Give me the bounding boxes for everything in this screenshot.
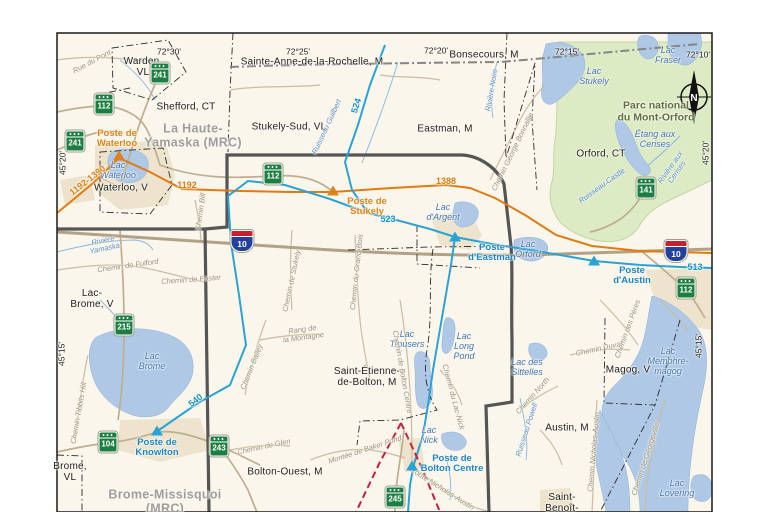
municipality-label-6: Orford, CT bbox=[576, 149, 625, 160]
substation-triangle-icon-4 bbox=[151, 426, 163, 436]
route-shield-qc-icon-7: 243 bbox=[210, 436, 229, 457]
route-shield-qc-icon-3: 112 bbox=[264, 164, 283, 185]
road-label-14: Route Nicholas-Austin bbox=[408, 466, 475, 512]
road-label-5: Chemin de Fulford bbox=[97, 258, 159, 275]
substation-triangle-icon-2 bbox=[449, 232, 461, 242]
stream-label-3: Ruisseau Castle bbox=[577, 167, 626, 206]
graticule-label-8: 45°15' bbox=[694, 334, 703, 358]
graticule-label-4: 72°10' bbox=[686, 50, 710, 59]
lake-label-10: Lac des Sittelles bbox=[511, 358, 543, 378]
road-label-17: Chemin North bbox=[514, 376, 551, 416]
municipality-label-2: Sainte-Anne-de-la-Rochelle, M bbox=[241, 57, 384, 68]
transmission-line-label-6: 513 bbox=[687, 263, 702, 273]
lake-label-12: Lac Lovering bbox=[660, 479, 695, 499]
park-label-0: Parc national du Mont-Orford bbox=[618, 100, 695, 123]
route-shield-qc-icon-6: 104 bbox=[99, 432, 118, 453]
municipality-label-13: Magog, V bbox=[606, 365, 650, 376]
graticule-label-2: 72°20' bbox=[424, 46, 448, 55]
road-label-9: Chemin Bailey bbox=[239, 343, 265, 391]
stream-label-1: Rivière Noire bbox=[484, 68, 500, 112]
map-canvas: N 72°30'72°25'72°20'72°15'72°10'45°20'45… bbox=[0, 0, 768, 512]
road-label-13: Chemin du Lac-Nick bbox=[440, 363, 465, 430]
lake-label-5: Lac Orford bbox=[515, 240, 541, 260]
road-label-12: Chemin de Bolton Centre bbox=[391, 330, 414, 414]
mrc-label-0: La Haute- Yamaska (MRC) bbox=[144, 122, 242, 150]
transmission-line-label-4: 523 bbox=[380, 215, 395, 225]
substation-triangle-icon-1 bbox=[327, 186, 339, 196]
lake-label-4: Lac d'Argent bbox=[426, 203, 459, 223]
graticule-label-3: 72°15' bbox=[555, 47, 579, 56]
municipality-label-11: Saint-Étienne- de-Bolton, M bbox=[334, 366, 400, 388]
lake-label-3: Étang aux Cerises bbox=[635, 130, 676, 150]
road-label-6: Chemin de Foster bbox=[161, 274, 221, 286]
substation-triangle-icon-5 bbox=[406, 461, 418, 471]
lake-label-11: Lac Memphré- magog bbox=[647, 347, 688, 377]
municipality-label-10: Bolton-Ouest, M bbox=[247, 467, 322, 478]
substation-label-1: Poste de Stukely bbox=[347, 197, 387, 218]
stream-label-2: Rivière Yamaska bbox=[87, 234, 120, 257]
municipality-label-3: Bonsecours, M bbox=[449, 50, 518, 61]
stream-label-4: Rivière aux Cerises bbox=[656, 150, 691, 190]
substation-triangle-icon-3 bbox=[588, 256, 600, 266]
map-labels-layer: 72°30'72°25'72°20'72°15'72°10'45°20'45°1… bbox=[0, 0, 768, 512]
lake-label-9: Lac Nick bbox=[420, 426, 438, 446]
route-shield-qc-icon-8: 245 bbox=[386, 487, 405, 508]
stream-label-0: Ruisseau Guilbert bbox=[311, 98, 344, 156]
municipality-label-12: Austin, M bbox=[545, 423, 588, 434]
route-shield-qc-icon-1: 241 bbox=[66, 131, 85, 152]
substation-label-2: Poste d'Eastman bbox=[468, 243, 516, 264]
stream-label-5: Ruisseau Powell bbox=[515, 402, 540, 457]
route-shield-qc-icon-4: 112 bbox=[677, 278, 696, 299]
road-label-2: Chemin de Stukely bbox=[281, 249, 302, 312]
substation-label-5: Poste de Bolton Centre bbox=[421, 454, 484, 475]
graticule-label-6: 45°15' bbox=[57, 342, 66, 366]
mrc-label-1: Brome-Missisquoi (MRC) bbox=[108, 488, 221, 512]
lake-label-7: Lac Trousers bbox=[390, 330, 425, 350]
substation-label-3: Poste d'Austin bbox=[613, 266, 651, 287]
municipality-label-1: Shefford, CT bbox=[157, 102, 216, 113]
lake-label-1: Lac Stukely bbox=[579, 67, 609, 87]
route-shield-qc-icon-5: 215 bbox=[115, 315, 134, 336]
road-label-0: Rue du Pont bbox=[72, 49, 113, 76]
road-label-18: Chemin de Georgeville bbox=[630, 421, 661, 496]
graticule-label-1: 72°25' bbox=[286, 47, 310, 56]
road-label-7: Chemin Tibbits Hill bbox=[70, 382, 89, 445]
road-label-4: Chemin George Bonnallie bbox=[490, 112, 535, 193]
substation-label-0: Poste de Waterloo bbox=[97, 129, 137, 150]
lake-label-2: Lac Fraser bbox=[655, 46, 681, 66]
transmission-line-label-0: 1192-1390 bbox=[68, 164, 108, 198]
municipality-label-9: Brome, VL bbox=[53, 461, 86, 483]
road-label-15: Chemin Nicholas-Austin bbox=[586, 412, 601, 492]
road-label-19: Chemin des Pères bbox=[614, 299, 643, 360]
municipality-label-4: Stukely-Sud, VL bbox=[252, 122, 327, 133]
substation-triangle-icon-0 bbox=[113, 151, 125, 161]
lake-label-6: Lac Brome bbox=[139, 352, 166, 372]
graticule-label-7: 45°20' bbox=[701, 141, 710, 165]
autoroute-shield-icon-0: 10 bbox=[231, 230, 254, 252]
road-label-8: Rang de la Montagne bbox=[281, 323, 324, 345]
transmission-line-label-5: 540 bbox=[187, 392, 205, 409]
lake-label-8: Lac Long Pond bbox=[453, 332, 474, 362]
municipality-label-8: Lac- Brome, V bbox=[70, 288, 113, 310]
transmission-line-label-3: 524 bbox=[350, 97, 364, 114]
municipality-label-7: Waterloo, V bbox=[94, 183, 148, 194]
autoroute-shield-icon-1: 10 bbox=[665, 240, 688, 262]
transmission-line-label-2: 1388 bbox=[436, 177, 456, 187]
road-label-1: Chemin Bill bbox=[194, 193, 207, 232]
transmission-line-label-1: 1192 bbox=[177, 181, 197, 191]
road-label-11: Montée de Baker Pond bbox=[327, 434, 403, 466]
lake-label-0: Lac Waterloo bbox=[100, 161, 136, 181]
road-label-3: Chemin du Grand-Bois bbox=[349, 234, 365, 311]
route-shield-qc-icon-9: 141 bbox=[637, 178, 656, 199]
graticule-label-5: 45°20' bbox=[58, 151, 67, 175]
route-shield-qc-icon-0: 241 bbox=[151, 63, 170, 84]
route-shield-qc-icon-2: 112 bbox=[95, 94, 114, 115]
road-label-10: Chemin de Glen bbox=[237, 437, 292, 456]
road-label-16: Chemin Duval bbox=[575, 340, 623, 358]
municipality-label-5: Eastman, M bbox=[417, 124, 472, 135]
substation-label-4: Poste de Knowlton bbox=[135, 438, 178, 459]
municipality-label-14: Saint- Benoît- bbox=[545, 492, 579, 512]
graticule-label-0: 72°30' bbox=[157, 47, 181, 56]
